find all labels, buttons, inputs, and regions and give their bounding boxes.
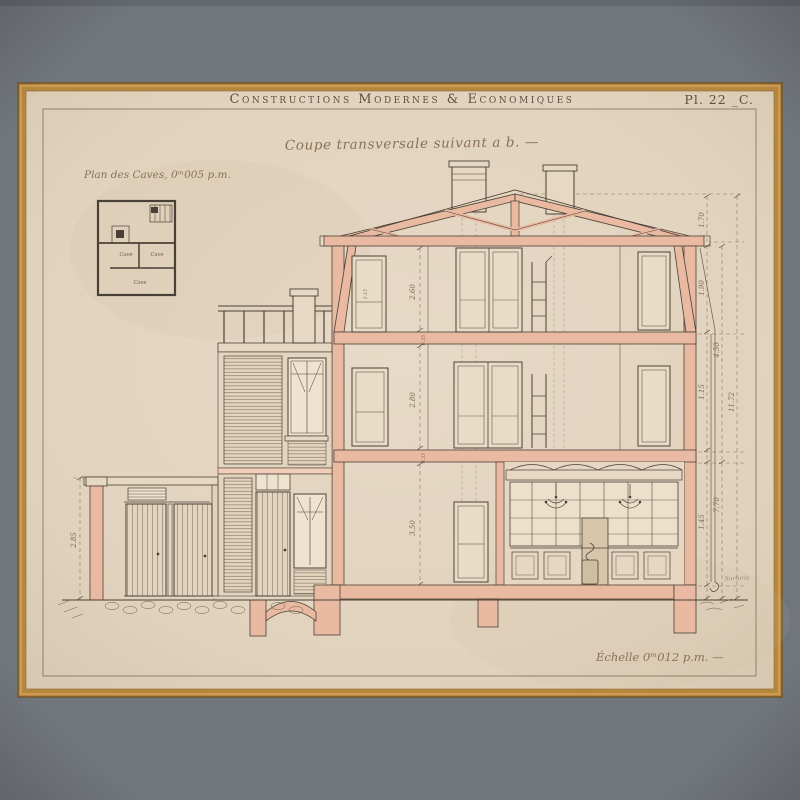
photo-vignette	[0, 0, 800, 800]
print-photo: Constructions Modernes & Economiques Pl.…	[0, 0, 800, 800]
framed-architectural-print: Constructions Modernes & Economiques Pl.…	[0, 0, 800, 800]
